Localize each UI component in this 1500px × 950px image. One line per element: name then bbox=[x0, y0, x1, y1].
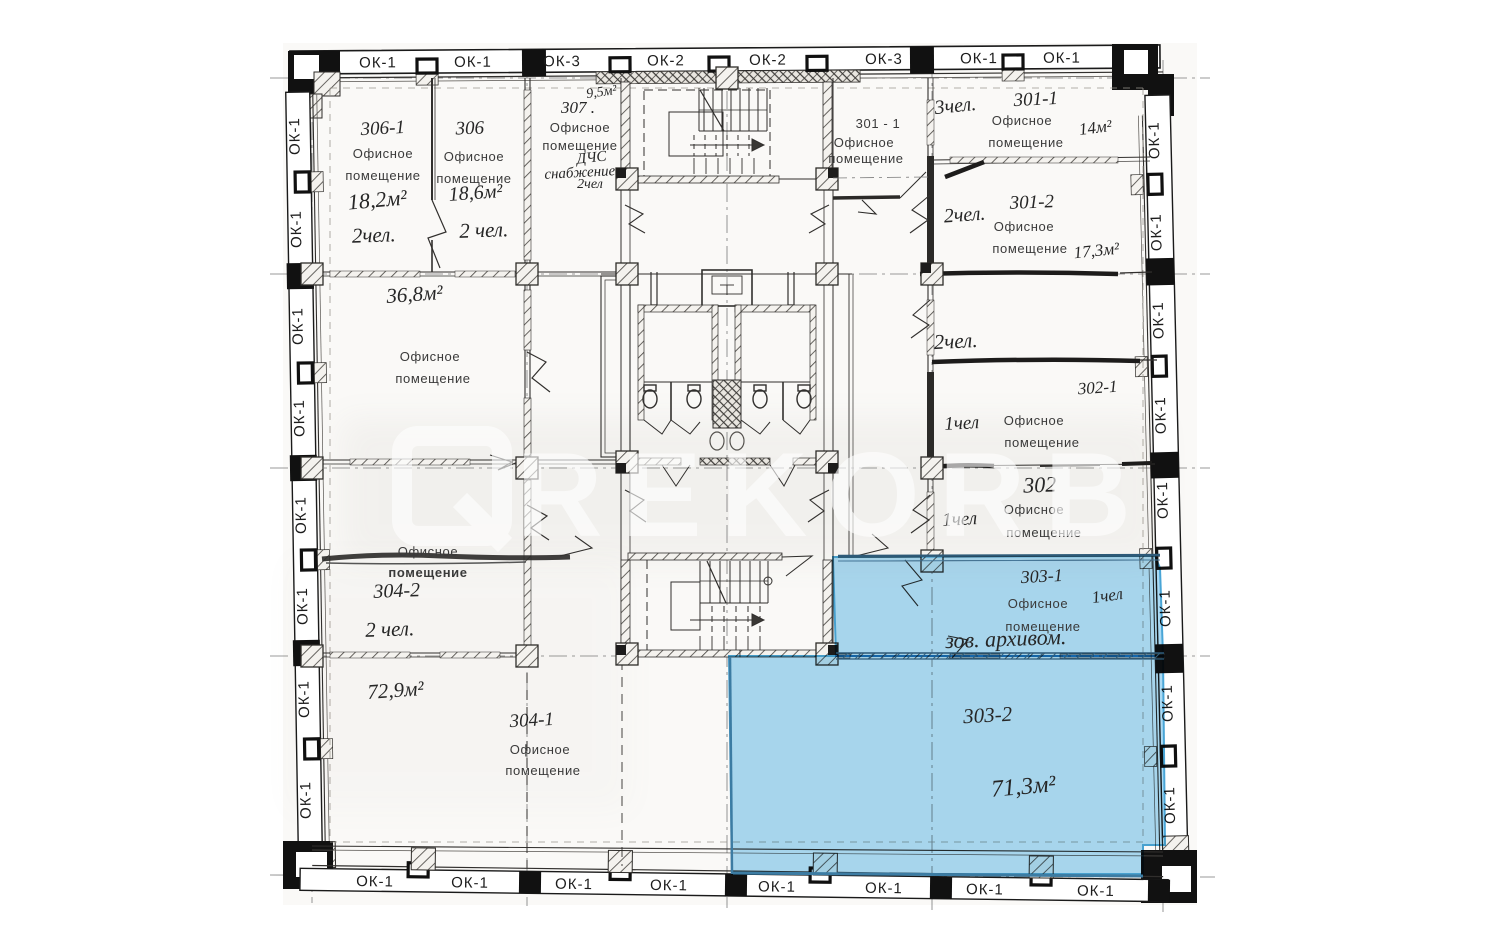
svg-text:ОК-1: ОК-1 bbox=[451, 874, 489, 891]
svg-text:ОК-1: ОК-1 bbox=[1150, 301, 1168, 339]
svg-text:ОК-2: ОК-2 bbox=[749, 52, 787, 69]
svg-text:ОК-1: ОК-1 bbox=[295, 680, 313, 718]
svg-text:ОК-1: ОК-1 bbox=[1148, 213, 1166, 251]
svg-text:301-1: 301-1 bbox=[1012, 88, 1058, 111]
svg-text:Офисное: Офисное bbox=[834, 135, 894, 150]
svg-text:18,2м²: 18,2м² bbox=[347, 184, 408, 214]
svg-text:ОК-1: ОК-1 bbox=[294, 587, 312, 625]
svg-text:ОК-1: ОК-1 bbox=[291, 399, 309, 437]
svg-text:Офисное: Офисное bbox=[400, 349, 460, 364]
svg-text:помещение: помещение bbox=[345, 168, 420, 183]
svg-text:3чел.: 3чел. bbox=[933, 93, 978, 119]
svg-text:Офисное: Офисное bbox=[1008, 596, 1068, 611]
svg-text:ОК-1: ОК-1 bbox=[288, 210, 306, 248]
svg-text:Офисное: Офисное bbox=[994, 219, 1054, 234]
svg-text:2 чел.: 2 чел. bbox=[365, 616, 415, 642]
svg-text:Офисное: Офисное bbox=[398, 544, 458, 559]
svg-text:зов. архивом.: зов. архивом. bbox=[944, 624, 1067, 653]
svg-text:301 - 1: 301 - 1 bbox=[856, 116, 901, 131]
svg-text:ОК-1: ОК-1 bbox=[1077, 882, 1115, 899]
svg-text:ОК-2: ОК-2 bbox=[647, 52, 685, 69]
svg-text:ОК-1: ОК-1 bbox=[454, 54, 492, 71]
svg-text:помещение: помещение bbox=[992, 241, 1067, 256]
svg-text:302-1: 302-1 bbox=[1076, 377, 1118, 399]
svg-text:Офисное: Офисное bbox=[1004, 413, 1064, 428]
svg-text:ОК-1: ОК-1 bbox=[356, 873, 394, 890]
svg-text:ОК-1: ОК-1 bbox=[297, 781, 315, 819]
svg-text:ОК-1: ОК-1 bbox=[289, 307, 307, 345]
svg-text:306-1: 306-1 bbox=[359, 117, 405, 140]
svg-text:ОК-3: ОК-3 bbox=[865, 51, 903, 68]
svg-text:306: 306 bbox=[454, 117, 485, 139]
svg-text:2чел.: 2чел. bbox=[943, 203, 986, 228]
svg-text:ОК-1: ОК-1 bbox=[1146, 121, 1164, 159]
svg-text:303-1: 303-1 bbox=[1019, 565, 1063, 587]
svg-text:ОК-1: ОК-1 bbox=[960, 50, 998, 67]
svg-text:ОК-1: ОК-1 bbox=[1043, 50, 1081, 67]
svg-text:помещение: помещение bbox=[388, 565, 467, 580]
svg-text:301-2: 301-2 bbox=[1008, 191, 1055, 214]
svg-text:72,9м²: 72,9м² bbox=[367, 676, 426, 704]
svg-text:304-1: 304-1 bbox=[508, 709, 554, 732]
svg-text:Офисное: Офисное bbox=[353, 146, 413, 161]
svg-text:ОК-1: ОК-1 bbox=[1152, 396, 1170, 434]
svg-text:помещение: помещение bbox=[395, 371, 470, 386]
svg-text:ОК-1: ОК-1 bbox=[865, 880, 903, 897]
svg-text:Офисное: Офисное bbox=[510, 742, 570, 757]
svg-text:2чел: 2чел bbox=[577, 177, 603, 192]
svg-text:Офисное: Офисное bbox=[444, 149, 504, 164]
svg-text:помещение: помещение bbox=[505, 763, 580, 778]
svg-text:307 .: 307 . bbox=[560, 98, 595, 117]
svg-text:помещение: помещение bbox=[988, 135, 1063, 150]
svg-text:2чел.: 2чел. bbox=[351, 222, 396, 248]
svg-text:2чел.: 2чел. bbox=[933, 328, 978, 354]
svg-text:Офисное: Офисное bbox=[550, 120, 610, 135]
svg-text:ОК-1: ОК-1 bbox=[359, 54, 397, 71]
svg-text:ОК-1: ОК-1 bbox=[758, 878, 796, 895]
svg-text:ОК-1: ОК-1 bbox=[966, 881, 1004, 898]
svg-text:ОК-1: ОК-1 bbox=[1154, 481, 1172, 519]
svg-text:ОК-1: ОК-1 bbox=[292, 496, 310, 534]
svg-text:304-2: 304-2 bbox=[372, 579, 420, 603]
svg-text:ОК-1: ОК-1 bbox=[555, 876, 593, 893]
svg-text:2 чел.: 2 чел. bbox=[459, 217, 509, 243]
svg-text:36,8м²: 36,8м² bbox=[385, 280, 445, 308]
svg-text:помещение: помещение bbox=[828, 151, 903, 166]
svg-text:REKORB: REKORB bbox=[516, 428, 1150, 562]
svg-text:ОК-3: ОК-3 bbox=[543, 53, 581, 70]
svg-text:ОК-1: ОК-1 bbox=[650, 877, 688, 894]
svg-text:18,6м²: 18,6м² bbox=[448, 180, 504, 206]
svg-text:ОК-1: ОК-1 bbox=[286, 117, 304, 155]
svg-text:303-2: 303-2 bbox=[962, 702, 1014, 729]
svg-text:Офисное: Офисное bbox=[992, 113, 1052, 128]
